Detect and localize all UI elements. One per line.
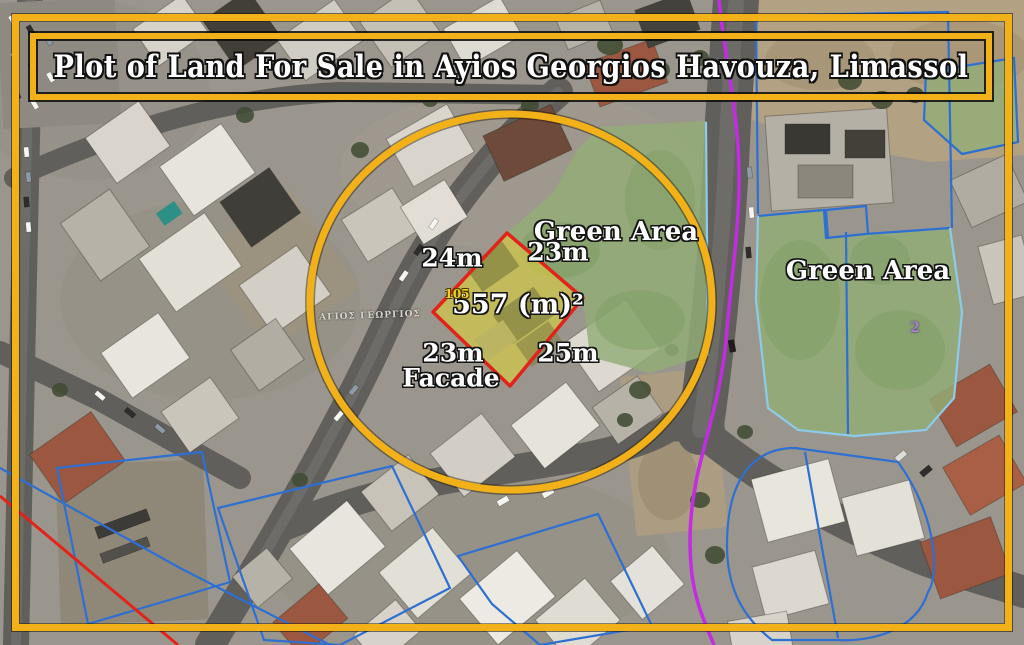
page-title: Plot of Land For Sale in Ayios Georgios …	[53, 49, 968, 85]
green-area-inner-label: Green Area	[534, 217, 698, 247]
facade-label: Facade	[402, 364, 499, 393]
green-area-right-label: Green Area	[786, 256, 950, 286]
plot-number-label: 105	[444, 287, 469, 301]
land-sale-flyer: Plot of Land For Sale in Ayios Georgios …	[0, 0, 1024, 645]
dimension-label-bottom-right: 25m	[537, 339, 598, 368]
plot-area-label: 557 (m)²	[452, 290, 584, 321]
title-banner: Plot of Land For Sale in Ayios Georgios …	[30, 33, 992, 100]
dimension-label-top-left: 24m	[421, 244, 482, 273]
parcel-number-label: 2	[910, 320, 920, 336]
